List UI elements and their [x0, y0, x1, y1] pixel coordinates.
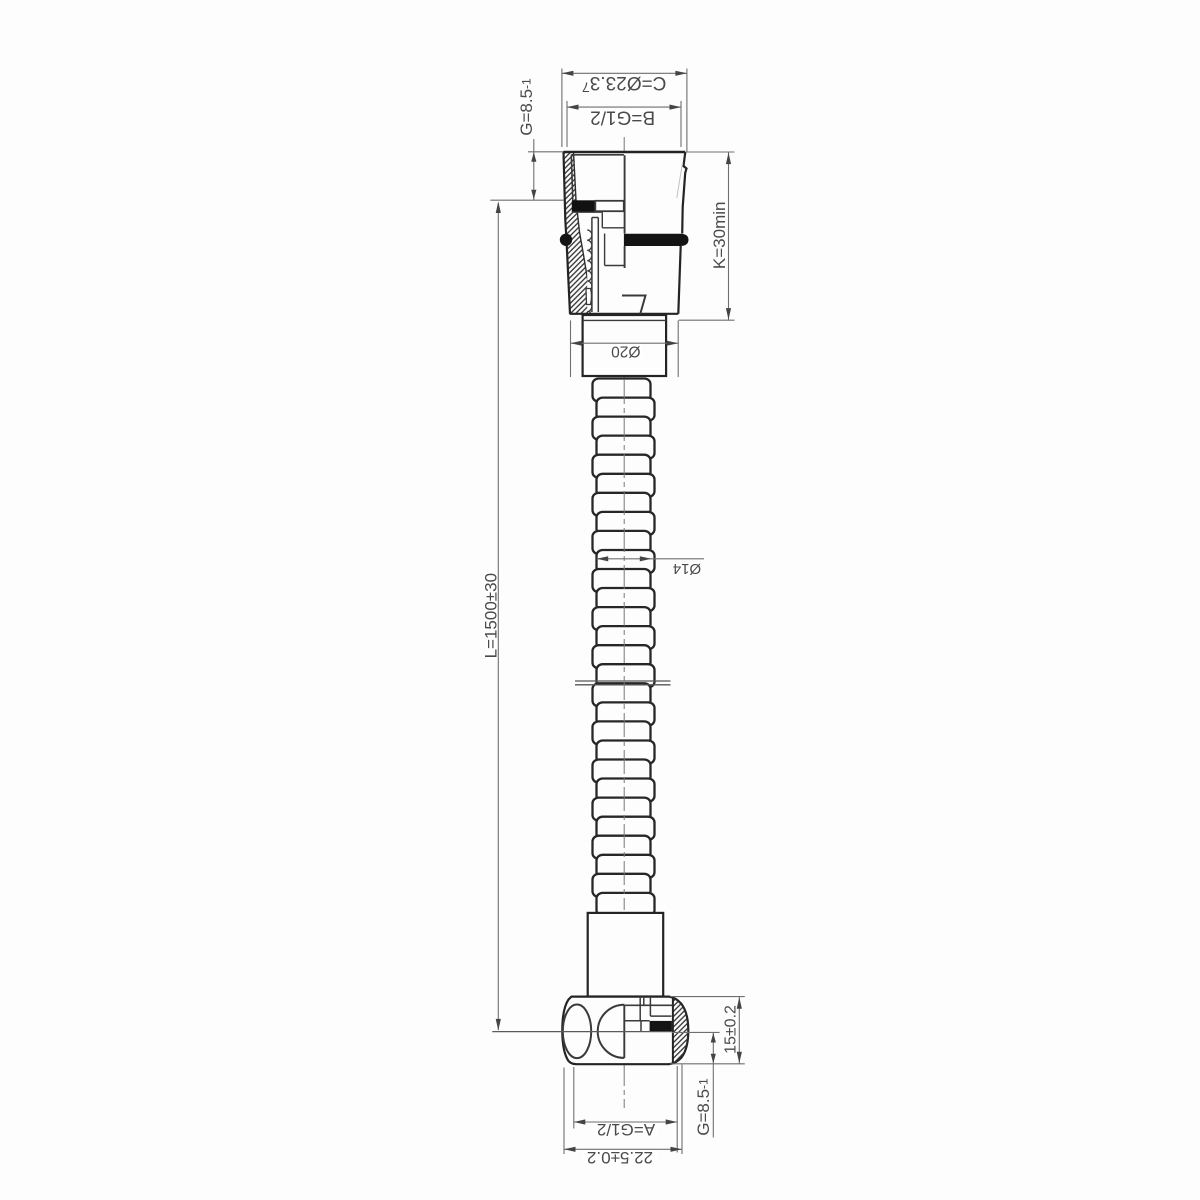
svg-text:L=1500±30: L=1500±30 [482, 573, 501, 658]
svg-text:Ø20: Ø20 [611, 342, 641, 359]
svg-text:C=Ø23.37: C=Ø23.37 [582, 72, 667, 96]
svg-text:G=8.5-1: G=8.5-1 [694, 1078, 713, 1136]
svg-text:K=30min: K=30min [710, 202, 729, 270]
svg-text:G=8.5-1: G=8.5-1 [517, 78, 536, 136]
svg-text:15±0.2: 15±0.2 [723, 1005, 740, 1054]
svg-text:22.5±0.2: 22.5±0.2 [587, 1148, 653, 1167]
svg-text:B=G1/2: B=G1/2 [590, 107, 655, 128]
svg-text:Ø14: Ø14 [673, 560, 701, 577]
svg-text:A=G1/2: A=G1/2 [597, 1120, 655, 1139]
